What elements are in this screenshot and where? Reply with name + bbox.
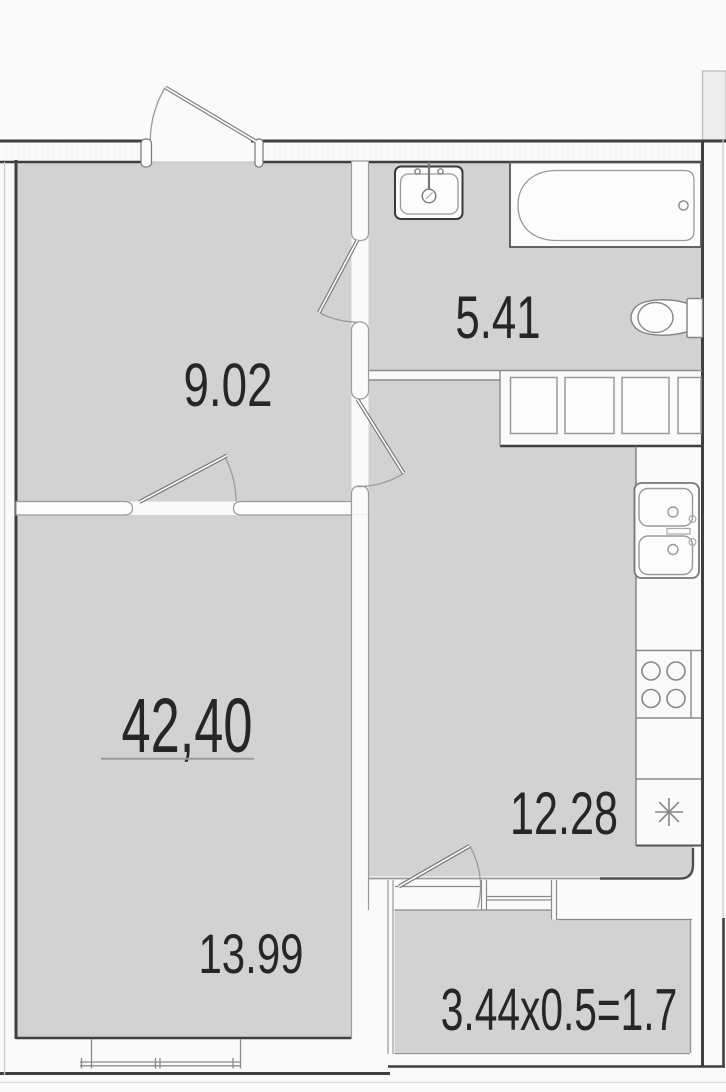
svg-text:13.99: 13.99 — [198, 923, 303, 985]
svg-text:42,40: 42,40 — [121, 682, 252, 769]
svg-text:9.02: 9.02 — [183, 352, 272, 420]
svg-text:3.44x0.5=1.7: 3.44x0.5=1.7 — [441, 976, 677, 1042]
svg-text:12.28: 12.28 — [510, 781, 618, 848]
svg-text:5.41: 5.41 — [455, 284, 540, 351]
